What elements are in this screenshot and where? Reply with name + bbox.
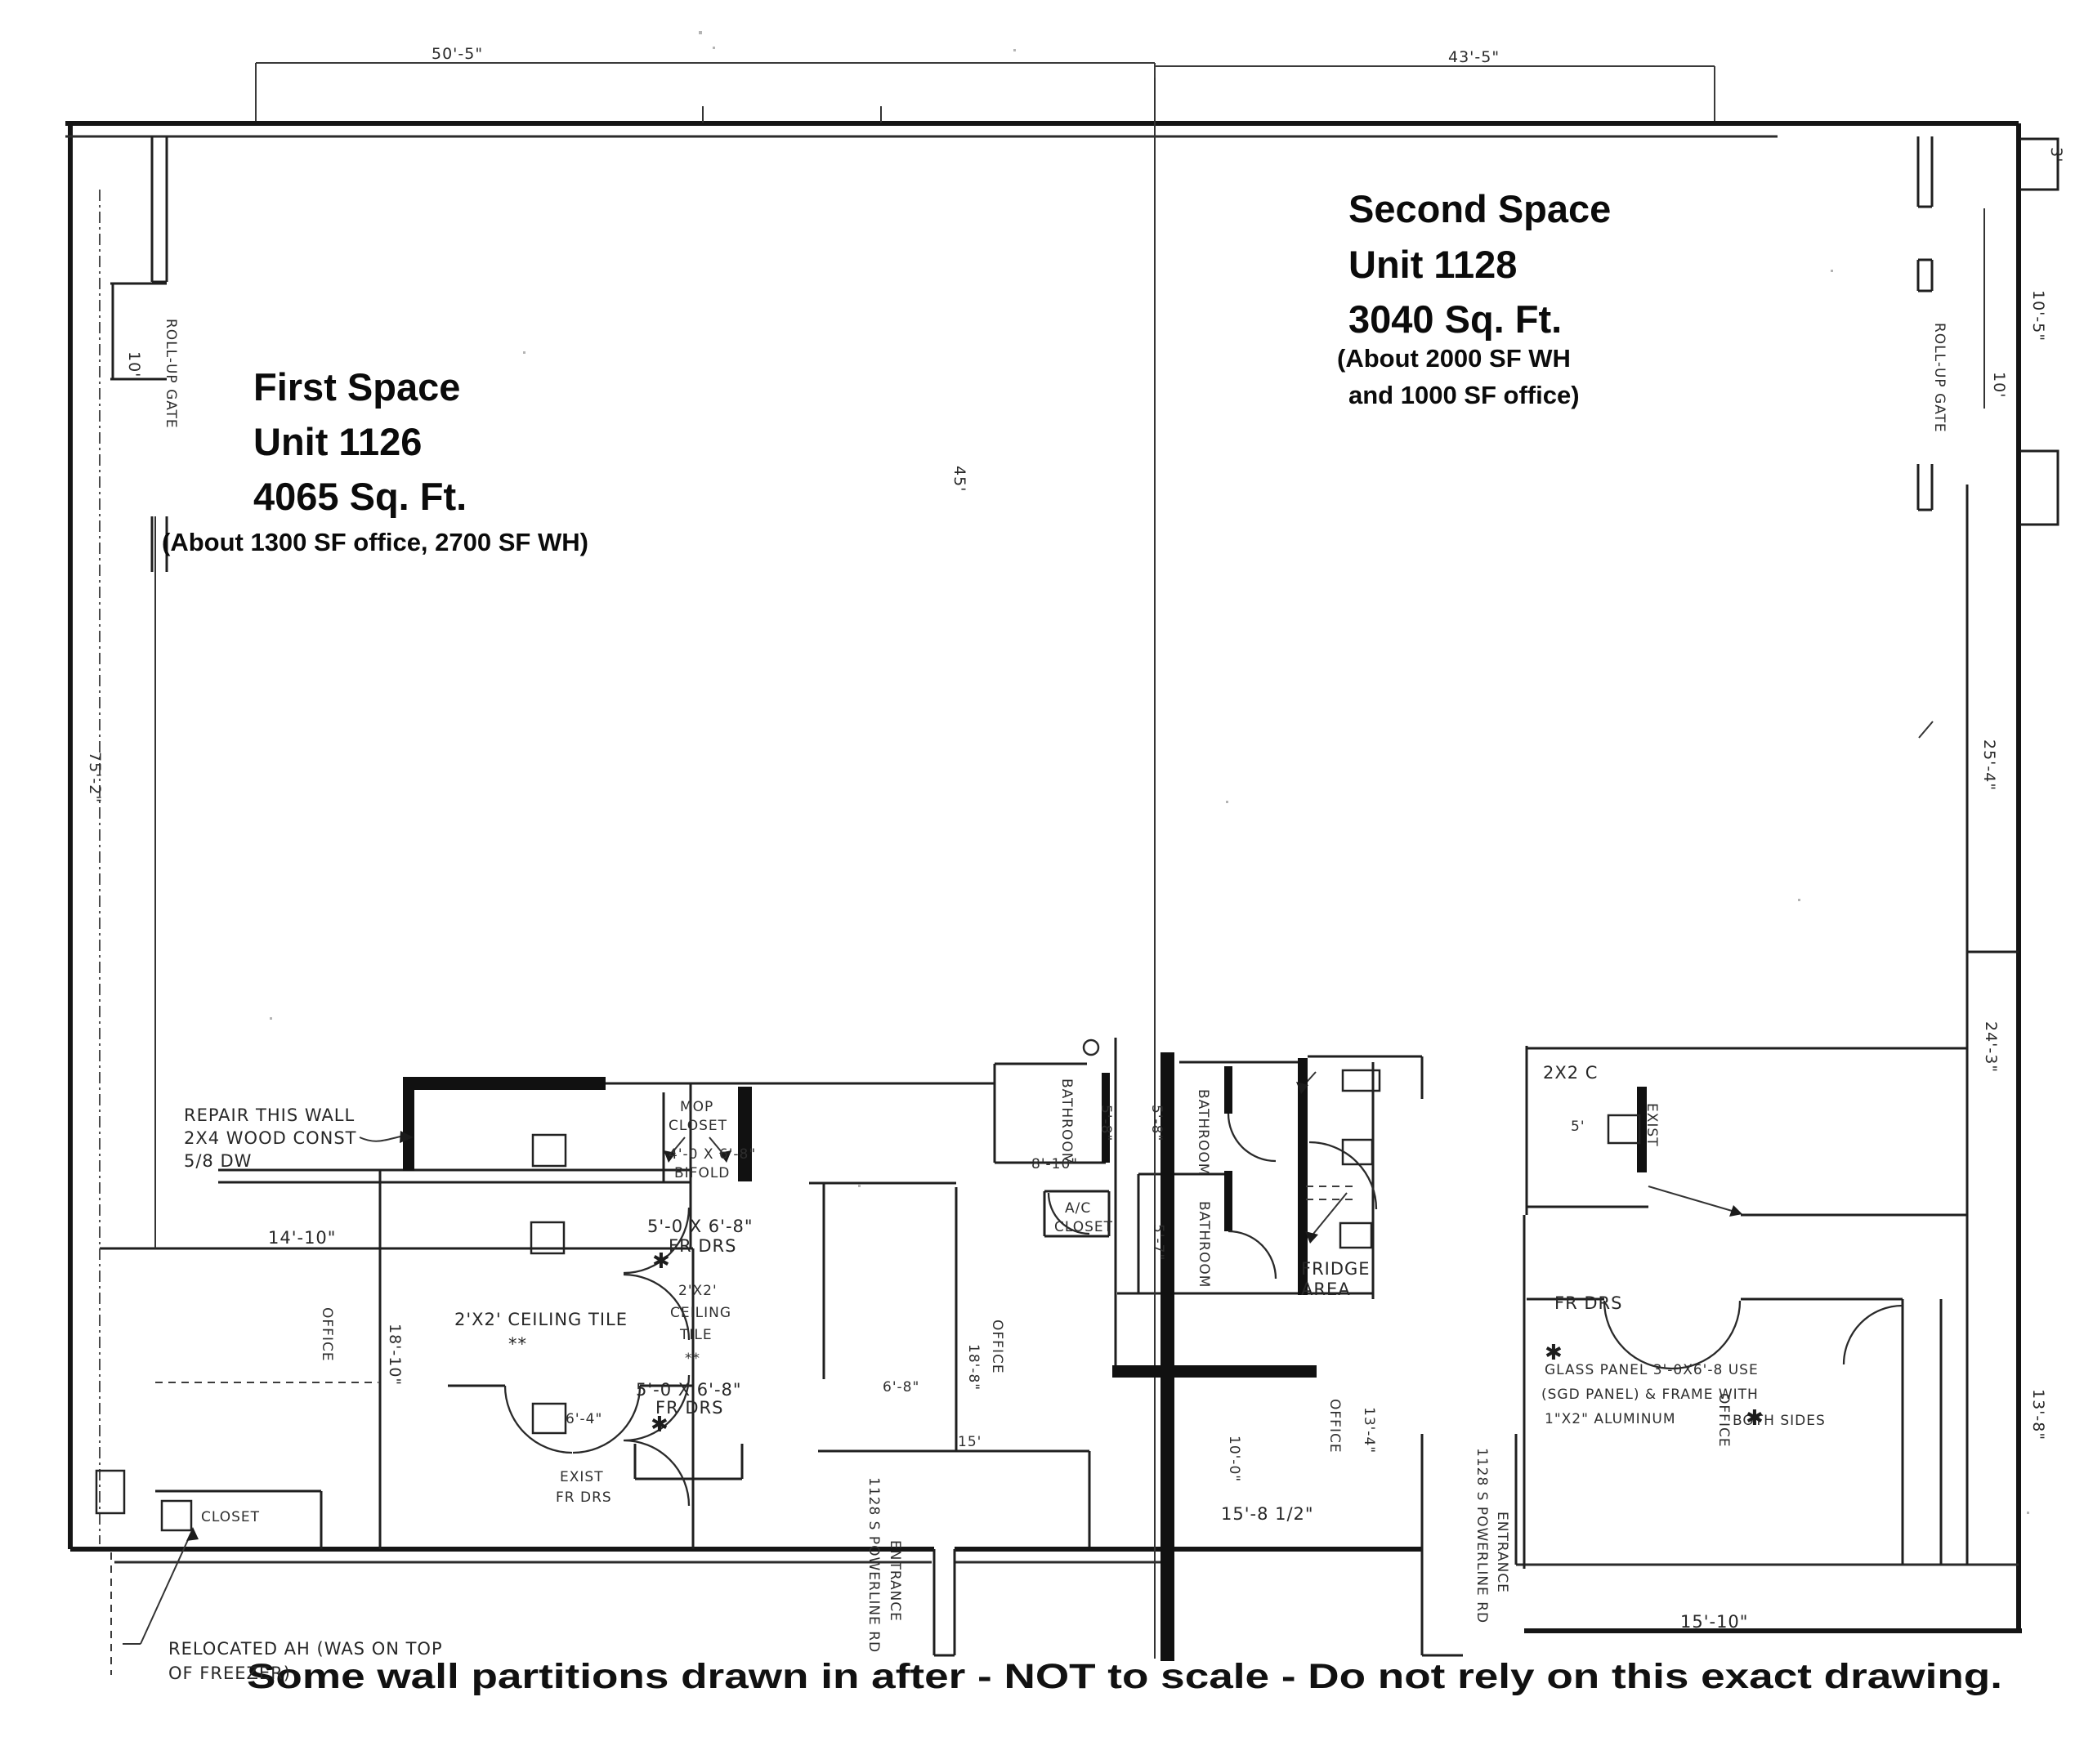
dim-gate-right-10ft: 10' — [1990, 372, 2008, 398]
note-ceiling-tile-stack-stars: ** — [685, 1351, 700, 1367]
note-2x2-ceiling-right: 2X2 C — [1543, 1063, 1598, 1083]
label-exist-doors-line2: FR DRS — [556, 1489, 612, 1506]
note-ceiling-tile-stack-1: 2'X2' — [678, 1283, 718, 1299]
asterisk-mark-2: ✱ — [651, 1413, 669, 1437]
second-space-heading: Second Space Unit 1128 3040 Sq. Ft. (Abo… — [1337, 187, 1611, 409]
dim-15-8-half: 15'-8 1/2" — [1221, 1504, 1314, 1524]
label-entrance-1128: ENTRANCE — [1494, 1512, 1510, 1593]
dim-bifold-size: 4'-0 X 6'-8" — [669, 1146, 756, 1163]
dim-15-10: 15'-10" — [1680, 1612, 1748, 1632]
dim-8-10: 8'-10" — [1031, 1156, 1078, 1172]
label-office-1128-east: OFFICE — [1715, 1393, 1732, 1448]
label-mop: MOP — [680, 1099, 713, 1115]
dim-bathroom-1128-b: 5'-7" — [1150, 1224, 1166, 1261]
dim-fr-doors-2-size: 5'-0 X 6'-8" — [636, 1380, 742, 1400]
walls-thin — [123, 78, 1984, 1659]
annotations: 50'-5" 43'-5" ROLL-UP GATE 10' 75'-2" RO… — [86, 45, 2065, 1683]
dim-right-bump-3ft: 3' — [2047, 147, 2065, 163]
first-space-unit: Unit 1126 — [253, 420, 422, 463]
scan-speckles — [270, 31, 2029, 1514]
asterisk-mark-1: ✱ — [652, 1249, 670, 1274]
dim-15ft: 15' — [958, 1434, 982, 1450]
first-space-area: 4065 Sq. Ft. — [253, 475, 467, 518]
note-glass-panel-line3: 1"X2" ALUMINUM — [1545, 1411, 1676, 1427]
dim-office-14-10: 14'-10" — [268, 1228, 336, 1248]
dim-top-right: 43'-5" — [1448, 48, 1500, 66]
label-exist-wall-right: EXIST — [1643, 1103, 1660, 1147]
dim-6-4: 6'-4" — [566, 1411, 602, 1427]
asterisk-mark-4: ✱ — [1746, 1406, 1764, 1431]
dim-right-24-3: 24'-3" — [1982, 1021, 2000, 1073]
label-rollup-gate-right: ROLL-UP GATE — [1931, 323, 1948, 433]
first-space-heading: First Space Unit 1126 4065 Sq. Ft. (Abou… — [162, 365, 588, 556]
label-office-1128-west: OFFICE — [1326, 1399, 1343, 1454]
dim-13-4: 13'-4" — [1361, 1407, 1377, 1454]
dim-center-45ft: 45' — [950, 466, 968, 492]
dim-right-25-4: 25'-4" — [1980, 739, 1998, 791]
label-bathroom-1128-b: BATHROOM — [1196, 1201, 1212, 1288]
label-office-left: OFFICE — [319, 1307, 335, 1362]
label-rollup-gate-left: ROLL-UP GATE — [163, 319, 179, 429]
second-space-title: Second Space — [1348, 187, 1611, 230]
asterisk-mark-3: ✱ — [1545, 1341, 1563, 1365]
walls-bold-filled — [403, 1052, 1647, 1661]
second-space-detail-line2: and 1000 SF office) — [1348, 381, 1580, 409]
note-glass-panel-line1: GLASS PANEL 3'-0X6'-8 USE — [1545, 1362, 1759, 1378]
note-ceiling-tile-stack-3: TILE — [679, 1327, 713, 1343]
second-space-area: 3040 Sq. Ft. — [1348, 297, 1562, 341]
label-fr-doors-right: FR DRS — [1554, 1293, 1622, 1313]
label-ac-closet-line2: CLOSET — [1054, 1219, 1113, 1235]
label-address-1126: 1128 S POWERLINE RD — [865, 1477, 882, 1653]
dim-right-13-8: 13'-8" — [2029, 1389, 2047, 1440]
note-relocated-ah-line2: OF FREEZER) — [168, 1664, 291, 1683]
label-bathroom-1128-a: BATHROOM — [1195, 1089, 1211, 1176]
note-repair-wall-line3: 5/8 DW — [184, 1151, 252, 1171]
note-ceiling-tile-long: 2'X2' CEILING TILE — [454, 1310, 628, 1329]
door-knob-circle — [1084, 1040, 1098, 1055]
note-ceiling-tile-stack-2: CEILING — [670, 1305, 731, 1321]
dimension-lines — [256, 63, 1715, 121]
floor-plan-drawing: First Space Unit 1126 4065 Sq. Ft. (Abou… — [0, 0, 2084, 1764]
first-space-detail: (About 1300 SF office, 2700 SF WH) — [162, 528, 588, 556]
label-closet: CLOSET — [201, 1509, 260, 1525]
label-fridge-line1: FRIDGE — [1301, 1259, 1371, 1279]
label-address-1128: 1128 S POWERLINE RD — [1474, 1448, 1490, 1623]
dim-bathroom-1126: 5'-8" — [1098, 1105, 1114, 1141]
label-fridge-line2: AREA — [1301, 1279, 1351, 1299]
arrowheads — [186, 1082, 1742, 1541]
footer-disclaimer-note: Some wall partitions drawn in after - NO… — [247, 1657, 2002, 1696]
label-exist-doors-line1: EXIST — [560, 1469, 604, 1485]
label-fr-doors-1: FR DRS — [669, 1236, 736, 1256]
label-ac-closet-line1: A/C — [1065, 1200, 1091, 1217]
label-office-middle: OFFICE — [989, 1320, 1005, 1374]
note-relocated-ah-line1: RELOCATED AH (WAS ON TOP — [168, 1639, 443, 1659]
label-bathroom-1126: BATHROOM — [1058, 1078, 1075, 1165]
dim-office-18-10: 18'-10" — [386, 1324, 404, 1386]
dim-left-height: 75'-2" — [86, 752, 104, 803]
walls-outer-second-line — [65, 136, 2019, 1565]
label-mop-closet: CLOSET — [669, 1118, 727, 1134]
dim-6-8: 6'-8" — [883, 1379, 919, 1396]
dim-office-middle-18-8: 18'-8" — [965, 1344, 982, 1391]
label-bifold: BIFOLD — [674, 1165, 730, 1181]
dim-5ft-right-room: 5' — [1571, 1119, 1585, 1135]
first-space-title: First Space — [253, 365, 460, 409]
dim-right-10-5: 10'-5" — [2029, 290, 2047, 342]
note-repair-wall-line1: REPAIR THIS WALL — [184, 1105, 355, 1125]
dim-gate-left-10ft: 10' — [125, 351, 143, 377]
dim-10-0: 10'-0" — [1226, 1436, 1242, 1482]
second-space-detail-line1: (About 2000 SF WH — [1337, 344, 1571, 373]
dim-top-left: 50'-5" — [432, 45, 483, 63]
note-repair-wall-line2: 2X4 WOOD CONST — [184, 1128, 357, 1148]
label-entrance-1126: ENTRANCE — [887, 1540, 903, 1622]
dim-bathroom-1128-a: 5'-8" — [1148, 1105, 1165, 1141]
note-ceiling-tile-long-stars: ** — [508, 1334, 527, 1354]
scanned-floor-plan-page: First Space Unit 1126 4065 Sq. Ft. (Abou… — [0, 0, 2084, 1764]
dim-fr-doors-1-size: 5'-0 X 6'-8" — [647, 1217, 754, 1236]
second-space-unit: Unit 1128 — [1348, 243, 1517, 286]
